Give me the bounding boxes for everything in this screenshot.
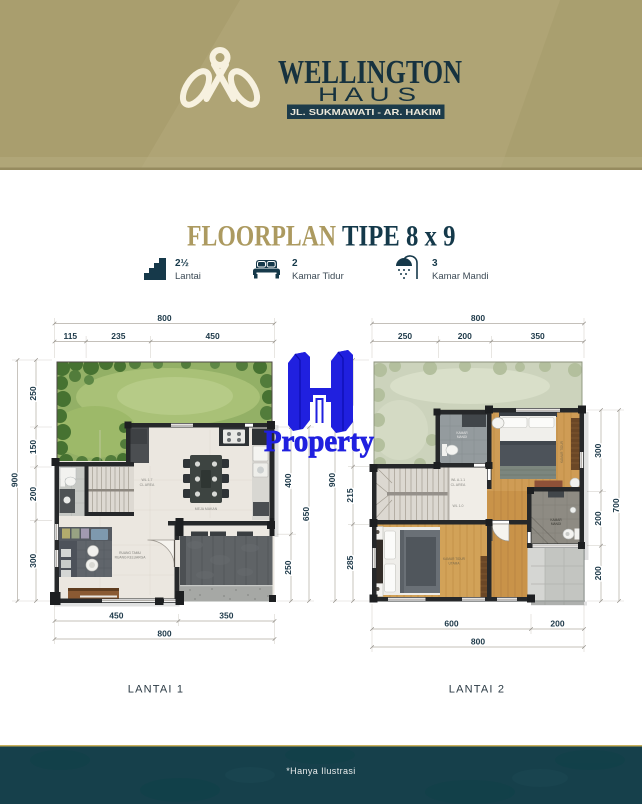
svg-text:2½: 2½ (175, 258, 189, 269)
svg-text:700: 700 (611, 498, 621, 512)
svg-text:200: 200 (28, 487, 38, 501)
svg-text:CL AREA: CL AREA (451, 483, 466, 487)
svg-text:285: 285 (345, 555, 355, 569)
svg-text:RUANG TAMU: RUANG TAMU (119, 551, 141, 555)
svg-text:200: 200 (593, 511, 603, 525)
svg-text:600: 600 (444, 619, 458, 629)
svg-text:KAMAR TIDUR: KAMAR TIDUR (443, 557, 466, 561)
svg-text:300: 300 (593, 443, 603, 457)
svg-text:LANTAI 2: LANTAI 2 (449, 684, 505, 696)
svg-text:115: 115 (63, 331, 77, 341)
svg-text:UTAMA: UTAMA (449, 562, 461, 566)
svg-text:350: 350 (531, 331, 545, 341)
svg-text:3: 3 (432, 258, 438, 269)
svg-text:400: 400 (283, 473, 293, 487)
svg-text:Kamar Tidur: Kamar Tidur (292, 271, 344, 282)
svg-text:150: 150 (28, 440, 38, 454)
svg-text:LANTAI 1: LANTAI 1 (128, 684, 184, 696)
svg-text:Lantai: Lantai (175, 271, 201, 282)
svg-text:FLOORPLAN: FLOORPLAN (187, 220, 336, 253)
svg-text:CL AREA: CL AREA (140, 483, 155, 487)
svg-text:900: 900 (10, 473, 20, 487)
svg-text:WL A.1.1: WL A.1.1 (451, 478, 465, 482)
svg-text:250: 250 (283, 560, 293, 574)
svg-text:TIPE 8 x 9: TIPE 8 x 9 (342, 220, 456, 253)
svg-text:800: 800 (157, 313, 171, 323)
svg-text:MEJA MAKAN: MEJA MAKAN (195, 507, 218, 511)
svg-text:215: 215 (345, 488, 355, 502)
svg-text:200: 200 (593, 566, 603, 580)
svg-text:300: 300 (28, 553, 38, 567)
svg-text:350: 350 (219, 611, 233, 621)
svg-text:235: 235 (111, 331, 125, 341)
svg-text:WL 1.0: WL 1.0 (453, 504, 464, 508)
svg-text:H A U S: H A U S (318, 85, 416, 106)
svg-text:*Hanya Ilustrasi: *Hanya Ilustrasi (286, 766, 355, 776)
svg-text:MANDI: MANDI (551, 522, 561, 526)
svg-text:250: 250 (28, 386, 38, 400)
svg-text:JL. SUKMAWATI - AR. HAKIM: JL. SUKMAWATI - AR. HAKIM (290, 107, 441, 117)
svg-text:WL 1.7: WL 1.7 (142, 478, 153, 482)
svg-text:800: 800 (471, 637, 485, 647)
svg-text:650: 650 (301, 507, 311, 521)
svg-text:450: 450 (109, 611, 123, 621)
svg-text:800: 800 (471, 313, 485, 323)
svg-text:KAMAR TIDUR: KAMAR TIDUR (560, 440, 564, 463)
svg-text:800: 800 (157, 629, 171, 639)
svg-text:200: 200 (458, 331, 472, 341)
svg-text:200: 200 (550, 619, 564, 629)
svg-text:MANDI: MANDI (457, 435, 467, 439)
svg-text:Property: Property (264, 423, 374, 458)
svg-text:450: 450 (206, 331, 220, 341)
svg-text:RUANG KELUARGA: RUANG KELUARGA (115, 556, 147, 560)
svg-text:250: 250 (398, 331, 412, 341)
svg-text:900: 900 (327, 473, 337, 487)
svg-text:Kamar Mandi: Kamar Mandi (432, 271, 489, 282)
svg-text:2: 2 (292, 258, 298, 269)
